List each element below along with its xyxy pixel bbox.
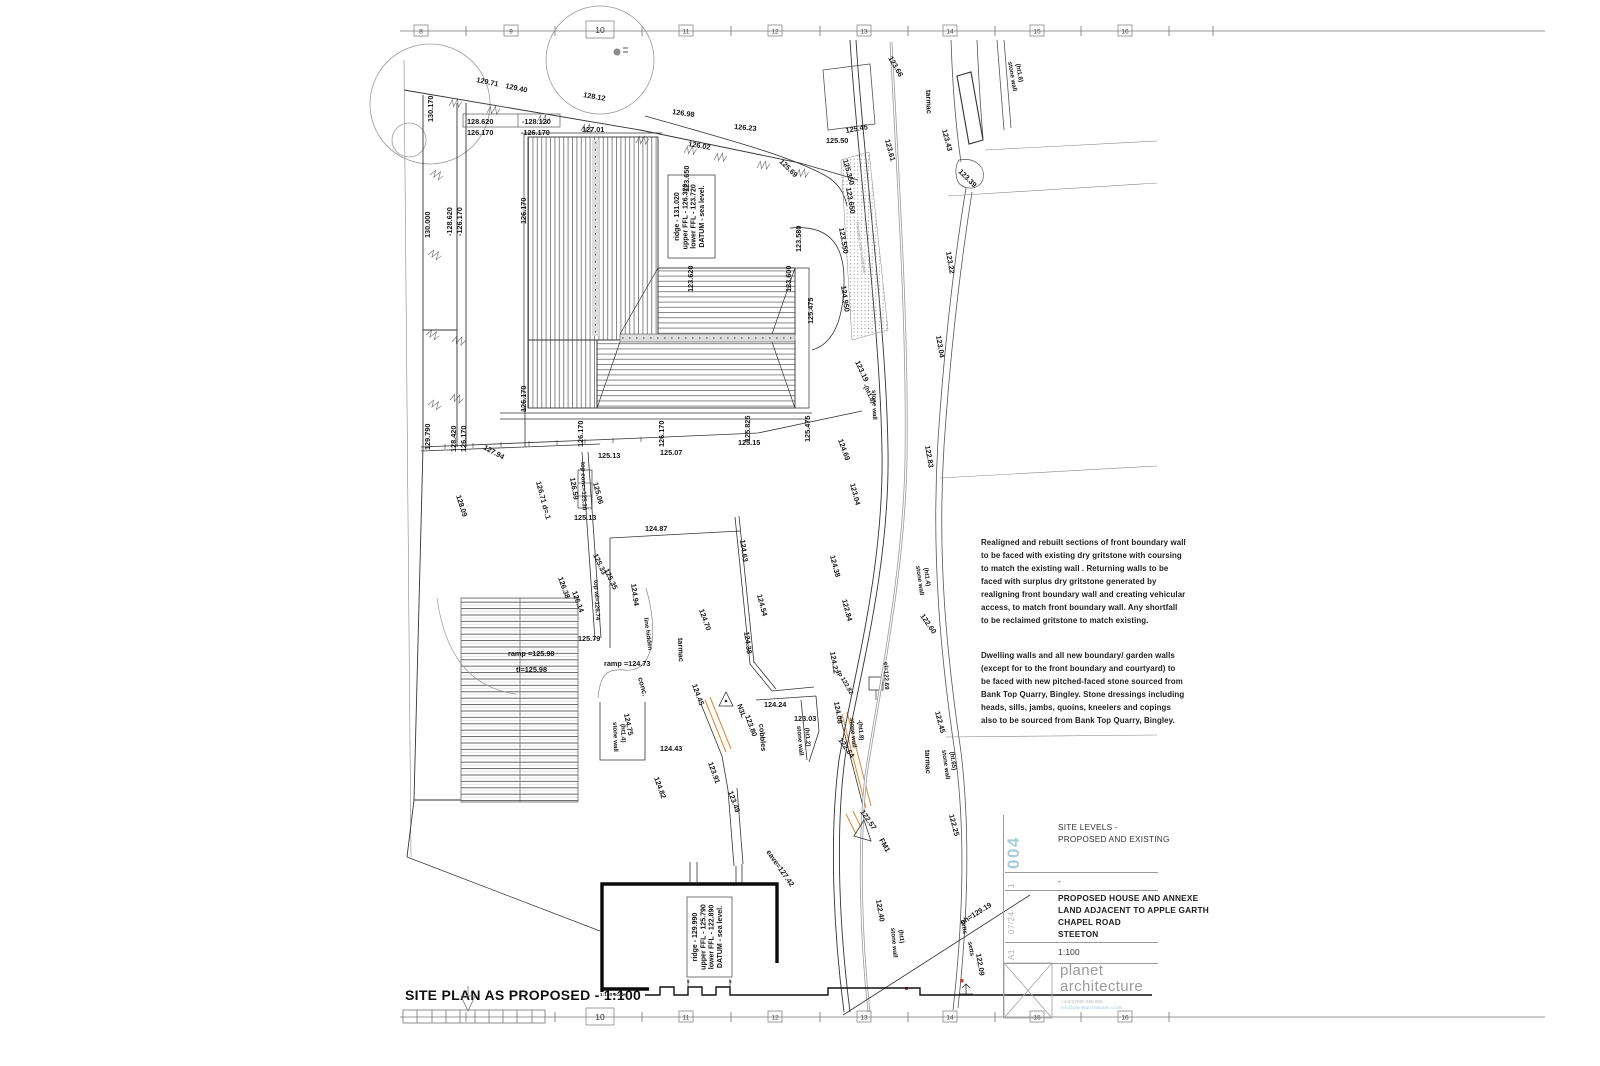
level-label: 123.600 [784,266,793,292]
note-paragraph: Realigned and rebuilt sections of front … [981,536,1187,627]
grid-ref-bottom-10: 10 [586,1008,614,1025]
drawing-date: 07/24 [1007,911,1016,934]
hedge-icon [714,152,727,162]
level-label: 128.620 [467,117,493,126]
drawing-scale: 1:100 [1058,947,1080,957]
level-label: tarmac [923,750,933,774]
grid-ref-label: 16 [1121,29,1129,36]
hedge-icon [757,160,770,170]
grid-ref-top-13: 13 [857,25,871,36]
level-label: 125.475 [806,298,815,324]
tree-tag [623,51,628,53]
survey-station-icon [959,984,973,994]
grid-ref-bottom-16: 16 [1118,1011,1132,1022]
grid-ref-top-12: 12 [768,25,782,36]
grid-refs-top: 8 9 10 11 12 13 14 15 16 [414,21,1132,38]
level-label: 124.38 [828,554,842,578]
level-label: 125.06 [591,481,605,505]
project-line4: STEETON [1058,929,1098,939]
level-label: 126.38 [556,576,572,600]
outbuilding [823,64,875,130]
level-label: 129.40 [505,81,529,94]
profile-ticks [688,979,730,987]
level-label: 125.13 [574,513,596,522]
level-label: tl=125.98 [516,665,547,674]
road-edge-4 [942,192,972,1008]
annexe-building: ridge - 129.990 upper FFL - 125.790 lowe… [602,862,777,992]
level-label: 124.82 [652,776,668,800]
level-label: 124.63 [738,539,750,562]
level-label: 5 [687,979,690,984]
field-line [985,141,1157,150]
level-label: stone wall [889,928,899,959]
level-label: 125.13 [598,451,620,460]
level-label: stone wall [795,726,805,757]
level-label: ramp =124.73 [604,659,650,668]
level-label: 124.45 [690,683,706,707]
level-label: 123.80 [743,714,759,738]
grid-ref-bottom-15: 15 [1030,1011,1044,1022]
level-label: setts [966,941,975,957]
level-label: 123.43 [940,128,954,152]
logo-box [1004,963,1052,1018]
lower-ffl: lower FFL - 122.890 [709,905,716,970]
grid-ref-label: 9 [509,29,513,36]
benchmark-triangle [719,692,733,706]
level-label: 123.620 [686,266,695,292]
level-label: -126.170 [521,128,550,137]
level-label: 123.04 [848,482,863,507]
level-annotations: 130.170129.71129.40128.12126.98126.23126… [423,55,1024,985]
drawing-sheet: 8 9 10 11 12 13 14 15 16 [0,0,1600,1066]
level-label: 125.79 [578,634,600,643]
level-label: (ht1.4) [619,724,627,743]
level-label: 123.22 [944,251,957,275]
benchmarks [719,692,973,994]
site-plan-drawing: 8 9 10 11 12 13 14 15 16 [0,0,1600,1066]
note-paragraph: Dwelling walls and all new boundary/ gar… [981,649,1187,727]
level-label: 122.83 [923,445,936,469]
level-label: 128.12 [583,90,607,103]
hedge-icon [430,168,444,181]
title-block-rule [1005,872,1158,873]
grid-ref-bottom-11: 11 [679,1011,693,1022]
level-label: 126.170 [576,421,585,447]
scale-note: 1:100 scale [600,992,626,998]
grid-ref-label: 8 [419,29,423,36]
level-label: 126.170 [459,426,468,452]
grid-ref-label: 10 [595,1012,605,1022]
level-label: 126.02 [688,139,712,152]
ridge-band-west [592,140,599,336]
tree-trunk-symbol [614,49,621,56]
level-label: FM1 [877,837,892,854]
grid-ref-top-16: 16 [1118,25,1132,36]
drawing-title-line2: PROPOSED AND EXISTING [1058,834,1170,844]
level-label: 126.98 [672,107,695,119]
revision: 1 [1007,883,1016,888]
southwest-boundary [407,857,600,931]
scale-strip-cells [417,1010,532,1023]
level-label: 124.22 [828,651,841,675]
level-label: 126.170 [519,198,528,224]
level-label: cobbles [757,723,768,751]
level-label: 124.54 [755,593,770,618]
level-label: 126.71 d=.1 [534,480,553,520]
logo-text-line2: architecture [1060,978,1143,995]
level-label: 126.23 [734,122,757,133]
level-label: 122.25 [947,813,961,837]
east-eave-edge [795,268,809,408]
grid-ruler-top [400,26,1545,36]
upper-ffl: upper FFL - 125.790 [700,904,707,970]
ridge-level: ridge - 131.020 [674,192,681,241]
courtyard-wall [610,531,740,648]
grid-ref-label: 11 [683,29,690,36]
hedge-icon [428,248,442,261]
west-garden-walls [423,95,466,447]
level-label: 123.91 [706,761,722,785]
tree-canopy [392,123,426,157]
level-label: tarmac [924,90,934,114]
drawing-title-line1: SITE LEVELS - [1058,822,1118,832]
level-label: 122.40 [874,899,887,923]
logo-text-line1: planet [1060,962,1103,979]
project-line2: LAND ADJACENT TO APPLE GARTH [1058,905,1209,915]
terrace-edge [500,408,812,447]
level-label: 123.39 [957,167,979,189]
level-label: tp 122.82 [835,670,855,697]
datum-note: DATUM - sea level. [717,906,724,968]
grid-ref-label: 14 [946,1015,954,1022]
project-line1: PROPOSED HOUSE AND ANNEXE [1058,893,1198,903]
level-label: 122.84 [840,598,855,623]
grid-ref-top-11: 11 [679,25,693,36]
level-label: 124.69 [836,438,852,462]
ridge-level: ridge - 129.990 [692,913,699,962]
level-label: 122.60 [918,612,938,635]
level-label: 124.24 [764,700,787,709]
level-label: cl=122.69 [882,662,890,690]
level-label: 126.59 [568,477,581,501]
level-label: stone wall [870,390,878,420]
grid-ref-bottom-13: 13 [857,1011,871,1022]
level-label: 125.475 [803,416,812,442]
level-label: tarmac [676,638,686,662]
revision-note: - [1058,876,1061,886]
west-boundary [404,60,411,857]
grid-ref-label: 16 [1121,1015,1129,1022]
logo-x-icon [1004,963,1052,1018]
level-label: 128.420 [449,426,458,452]
level-label: stone wall [611,722,619,752]
level-label: conc. [636,676,650,697]
grid-ref-top-8: 8 [414,25,428,36]
level-label: 124.43 [660,744,682,753]
annexe-levels-text: ridge - 129.990 upper FFL - 125.790 lowe… [692,904,724,970]
level-label: 123.650 [682,166,691,192]
level-label: line hidden [642,617,654,651]
level-label: -126.170 [455,207,464,236]
wall-ticks [445,437,641,449]
lower-ffl: lower FFL - 123.720 [691,184,698,249]
level-label: 124.94 [629,583,641,607]
level-label: 127.94 [482,443,507,462]
level-label: eave=127.42 [764,848,796,888]
grid-ref-label: 13 [860,29,868,36]
level-label: 130.170 [426,96,435,122]
roof-east-wing-lower [597,340,795,408]
level-label: -128.120 [522,117,551,126]
grid-ref-label: 11 [683,1015,690,1022]
sight-line [843,895,1030,1015]
level-label: 5 [729,979,732,984]
level-label: 123.04 [934,335,947,359]
main-house: ridge - 131.020 upper FFL - 126.320 lowe… [524,133,809,412]
benchmark-dot [725,700,727,702]
specification-notes: Realigned and rebuilt sections of front … [981,536,1187,749]
level-label: 123.03 [794,714,816,723]
level-label: top conc=125.30 [579,462,588,511]
level-label: 128.09 [454,494,469,518]
road-edge-2 [936,188,966,1010]
level-label: 125.69 [778,157,800,179]
tree-tag [623,47,628,49]
level-label: setts [959,919,968,935]
main-house-levels-text: ridge - 131.020 upper FFL - 126.320 lowe… [674,184,706,250]
hedge-icon [428,398,442,411]
grid-ref-label: 12 [771,1015,779,1022]
grid-ref-label: 15 [1033,29,1041,36]
level-label: 124.70 [697,608,713,632]
level-label: 124.08 [832,701,845,725]
grid-ref-top-14: 14 [943,25,957,36]
roof-west-wing-lower [528,340,597,408]
level-label: ramp =125.98 [508,649,554,658]
level-label: 130.000 [423,212,432,238]
level-label: 123.580 [794,226,803,252]
annexe-link-walls [690,862,697,884]
roof-east-wing-upper [658,268,795,335]
scale-strip [403,1010,545,1023]
ramp-hatched-area [461,598,578,802]
level-label: 124.87 [645,524,667,533]
level-label: 124.38 [742,631,754,654]
west-boundary-lower [407,447,461,857]
grid-ref-label: 13 [860,1015,868,1022]
grid-ref-top-10: 10 [586,21,614,38]
grid-ref-label: 14 [946,29,954,36]
upper-ffl: upper FFL - 126.320 [682,184,689,250]
grid-ref-label: 10 [595,25,605,35]
roadside-wall [997,40,1011,130]
level-label: 126.170 [467,128,493,137]
red-mark [960,979,964,983]
field-line [940,466,1157,478]
datum-note: DATUM - sea level. [699,185,706,247]
level-label: 125.50 [826,136,848,145]
grid-ref-bottom-14: 14 [943,1011,957,1022]
level-label: 122.45 [933,710,947,734]
drawing-number: 004 [1004,836,1024,869]
project-line3: CHAPEL ROAD [1058,917,1121,927]
grid-ref-top-9: 9 [504,25,518,36]
grid-ref-top-15: 15 [1030,25,1044,36]
phone-number: +44(0)7595 588 688 [1061,999,1103,1004]
hedge-icon [452,334,466,346]
title-block-rule [1005,890,1158,891]
level-label: 126.170 [519,386,528,412]
level-label: 123.19 [853,359,871,383]
level-label: (ht1) [897,930,905,944]
level-label: 125.35 [602,567,620,591]
level-label: 125.15 [738,438,760,447]
level-label: 123.66 [886,55,905,79]
title-block-rule [1005,942,1158,943]
level-label: -128.620 [445,207,454,236]
level-label: 125.45 [845,122,869,135]
email-address: info@planetarchitecture.co.uk [1061,1005,1122,1010]
sheet-size: A1 [1007,949,1016,960]
grid-ref-bottom-12: 12 [768,1011,782,1022]
level-label: 126.170 [657,421,666,447]
level-label: 125.07 [660,448,682,457]
level-label: 122.09 [974,953,987,977]
grid-ref-label: 12 [771,29,779,36]
level-label: 129.790 [423,424,432,450]
level-label: 127.01 [582,125,604,134]
